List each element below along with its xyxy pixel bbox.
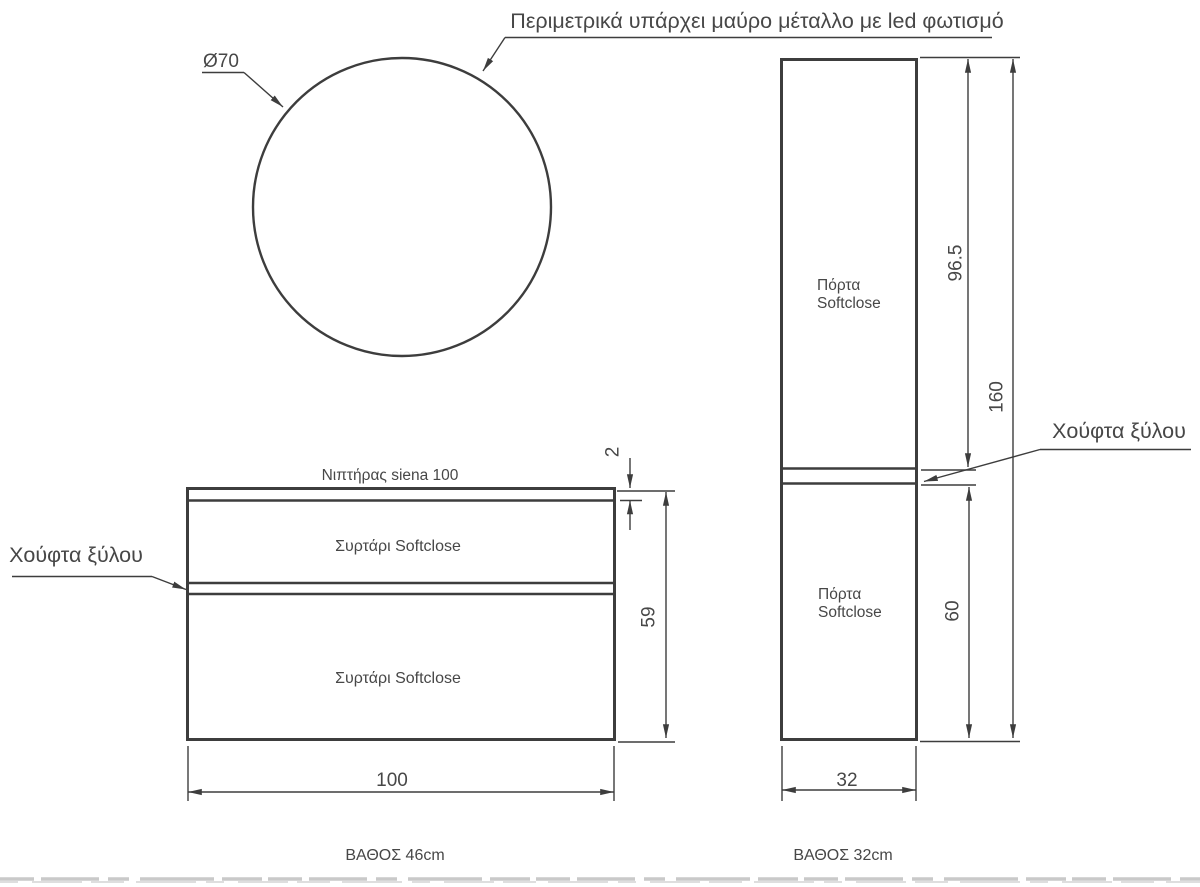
vanity-drawer-bottom-label: Συρτάρι Softclose <box>335 670 461 687</box>
wood-handle-right-label: Χούφτα ξύλου <box>1052 419 1186 443</box>
technical-drawing-page: Ø70 Περιμετρικά υπάρχει μαύρο μέταλλο με… <box>0 0 1200 887</box>
vanity-outline <box>188 489 615 740</box>
technical-drawing: Ø70 Περιμετρικά υπάρχει μαύρο μέταλλο με… <box>0 0 1200 887</box>
wood-handle-left-leader <box>152 577 186 590</box>
vanity-dim-counter-thickness-label: 2 <box>603 447 624 458</box>
perimeter-note-leader <box>483 38 505 72</box>
tall-cabinet-dim-door-bottom-label: 60 <box>943 600 964 621</box>
tall-cabinet-door-bottom-label-line1: Πόρτα <box>818 586 861 603</box>
vanity-drawer-top-label: Συρτάρι Softclose <box>335 538 461 555</box>
wood-handle-right-leader <box>924 450 1040 482</box>
mirror-diameter-leader <box>244 73 283 108</box>
tall-cabinet-dim-door-top-label: 96.5 <box>946 245 967 282</box>
vanity-dim-width-label: 100 <box>376 770 408 791</box>
tall-cabinet-door-top-label-line1: Πόρτα <box>817 277 860 294</box>
tall-cabinet-dim-total-label: 160 <box>987 381 1008 413</box>
mirror-diameter-label: Ø70 <box>203 51 239 72</box>
wood-handle-left-label: Χούφτα ξύλου <box>9 543 143 567</box>
mirror-circle <box>253 58 551 356</box>
tall-cabinet-depth-label: ΒΑΘΟΣ 32cm <box>793 847 892 864</box>
perimeter-note-label: Περιμετρικά υπάρχει μαύρο μέταλλο με led… <box>510 9 1003 33</box>
vanity-sink-label: Νιπτήρας siena 100 <box>322 467 459 484</box>
tall-cabinet-outline <box>782 60 917 740</box>
vanity-depth-label: ΒΑΘΟΣ 46cm <box>345 847 444 864</box>
tall-cabinet-dim-width-label: 32 <box>836 770 857 791</box>
tall-cabinet-door-top-label-line2: Softclose <box>817 295 881 312</box>
tall-cabinet-door-bottom-label-line2: Softclose <box>818 604 882 621</box>
vanity-dim-height-label: 59 <box>639 606 660 627</box>
